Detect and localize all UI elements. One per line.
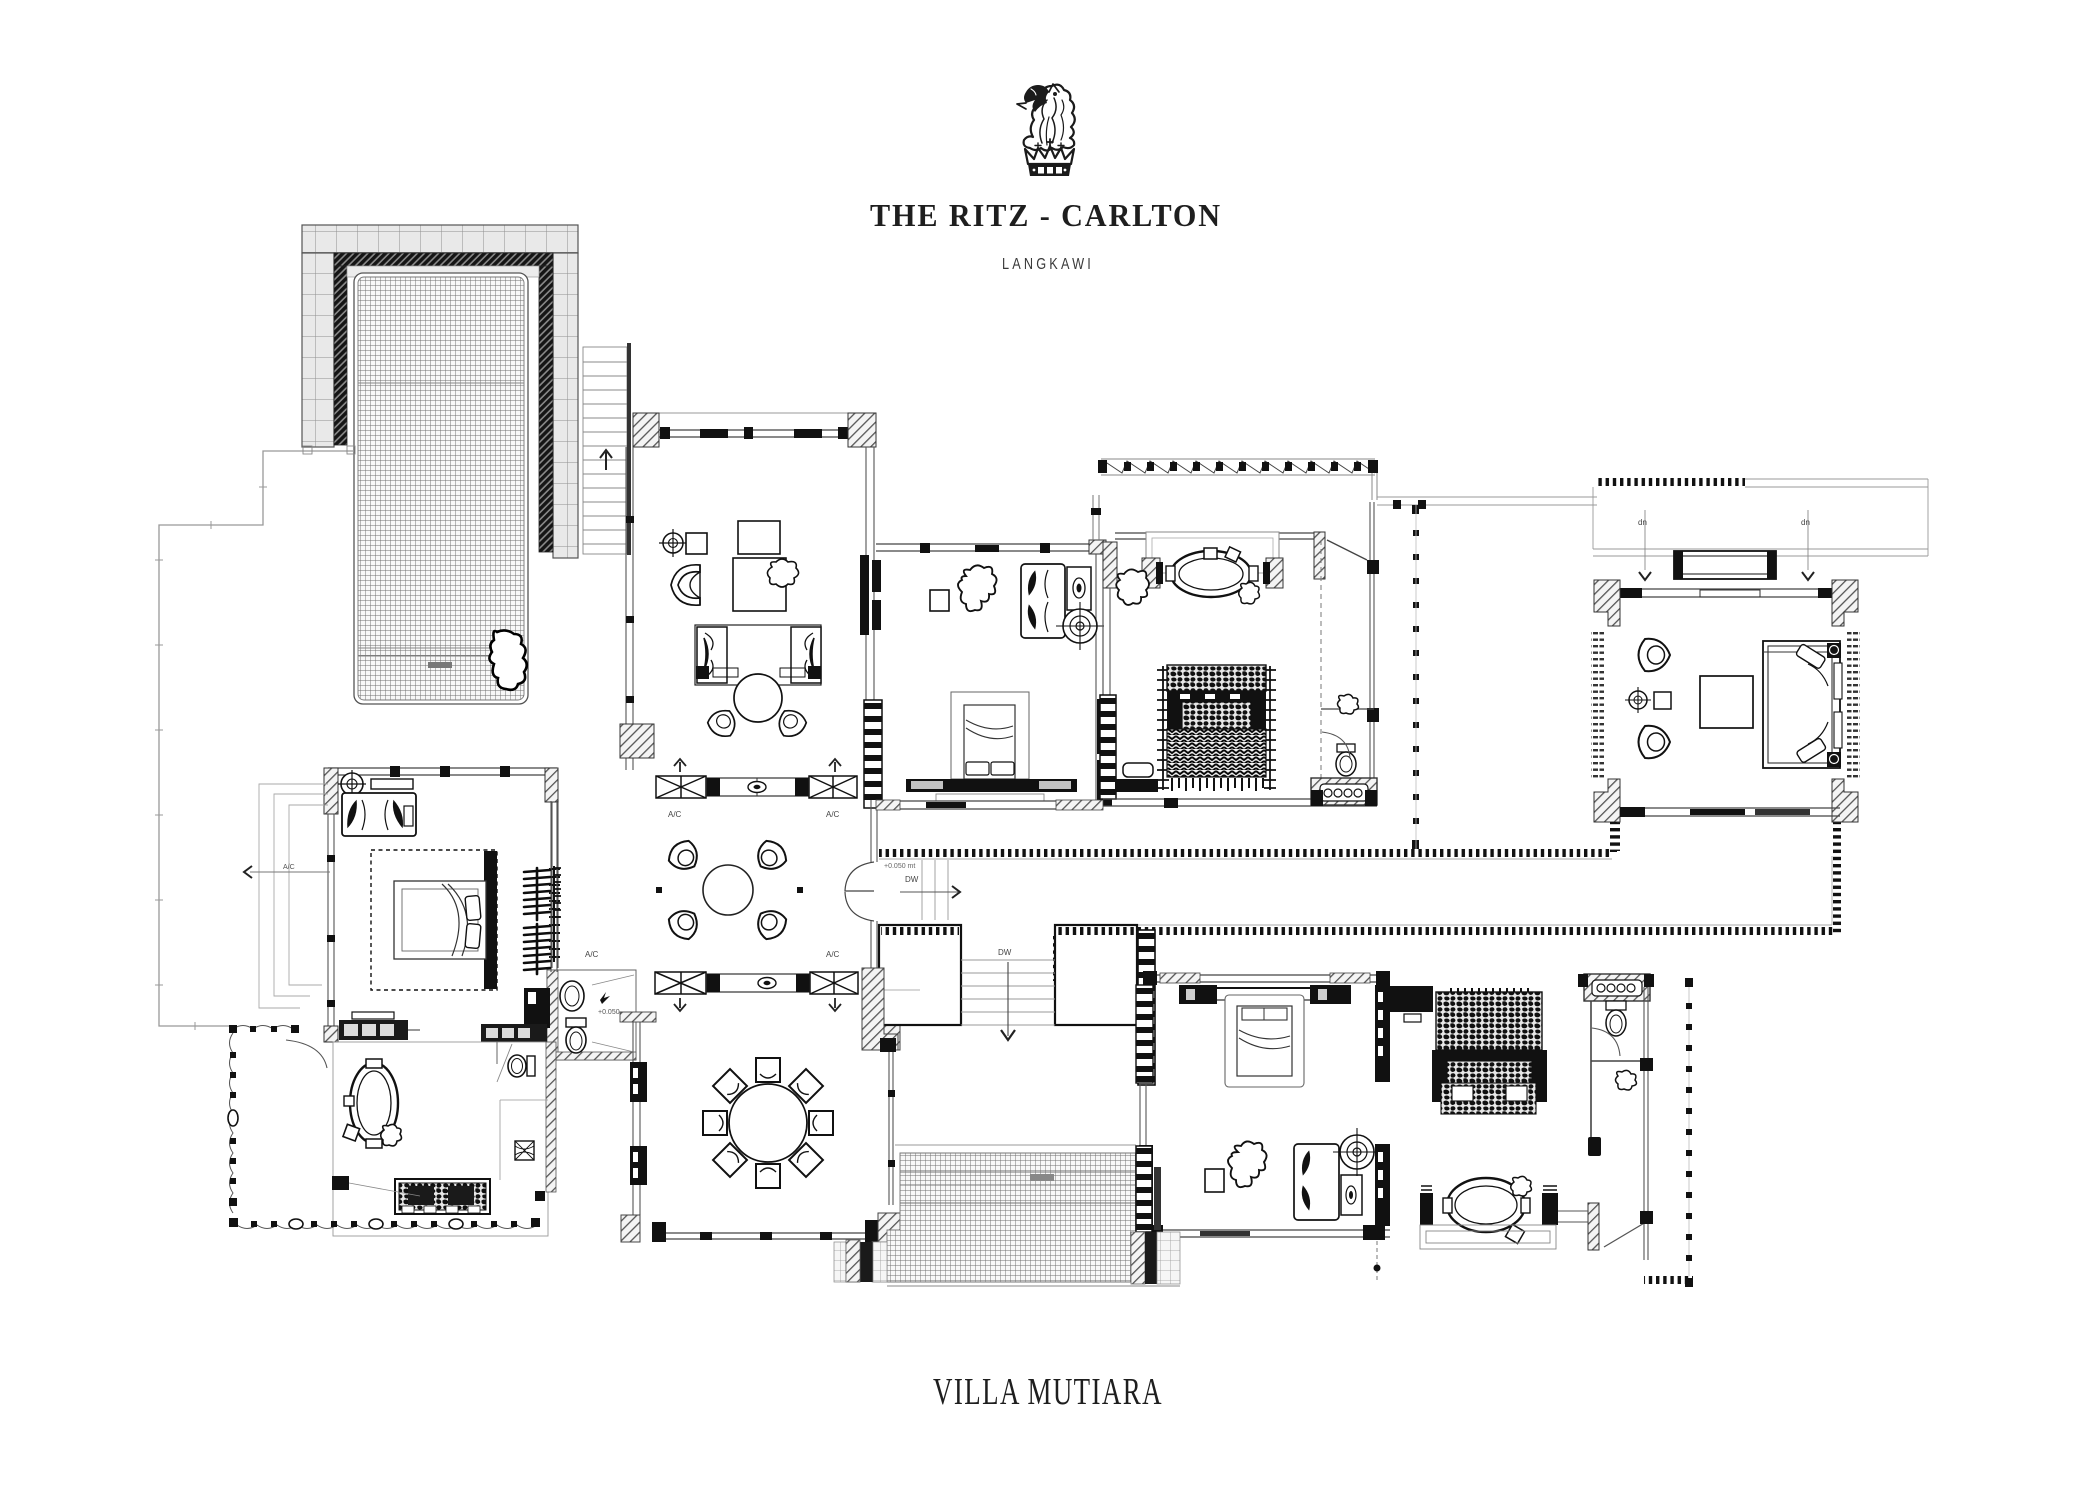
svg-text:A/C: A/C xyxy=(826,950,840,959)
svg-text:DW: DW xyxy=(998,948,1012,957)
svg-text:THE RITZ - CARLTON: THE RITZ - CARLTON xyxy=(870,197,1222,233)
svg-text:A/C: A/C xyxy=(826,810,840,819)
svg-text:DW: DW xyxy=(905,875,919,884)
svg-text:VILLA MUTIARA: VILLA MUTIARA xyxy=(933,1371,1163,1413)
svg-text:A/C: A/C xyxy=(668,810,682,819)
svg-text:+0.050 mt: +0.050 mt xyxy=(884,863,915,870)
svg-text:LANGKAWI: LANGKAWI xyxy=(1002,256,1094,273)
svg-text:dn: dn xyxy=(1638,518,1647,527)
svg-text:A/C: A/C xyxy=(283,864,295,871)
svg-text:A/C: A/C xyxy=(585,950,599,959)
svg-text:+0.050: +0.050 xyxy=(598,1009,620,1016)
svg-text:dn: dn xyxy=(1801,518,1810,527)
